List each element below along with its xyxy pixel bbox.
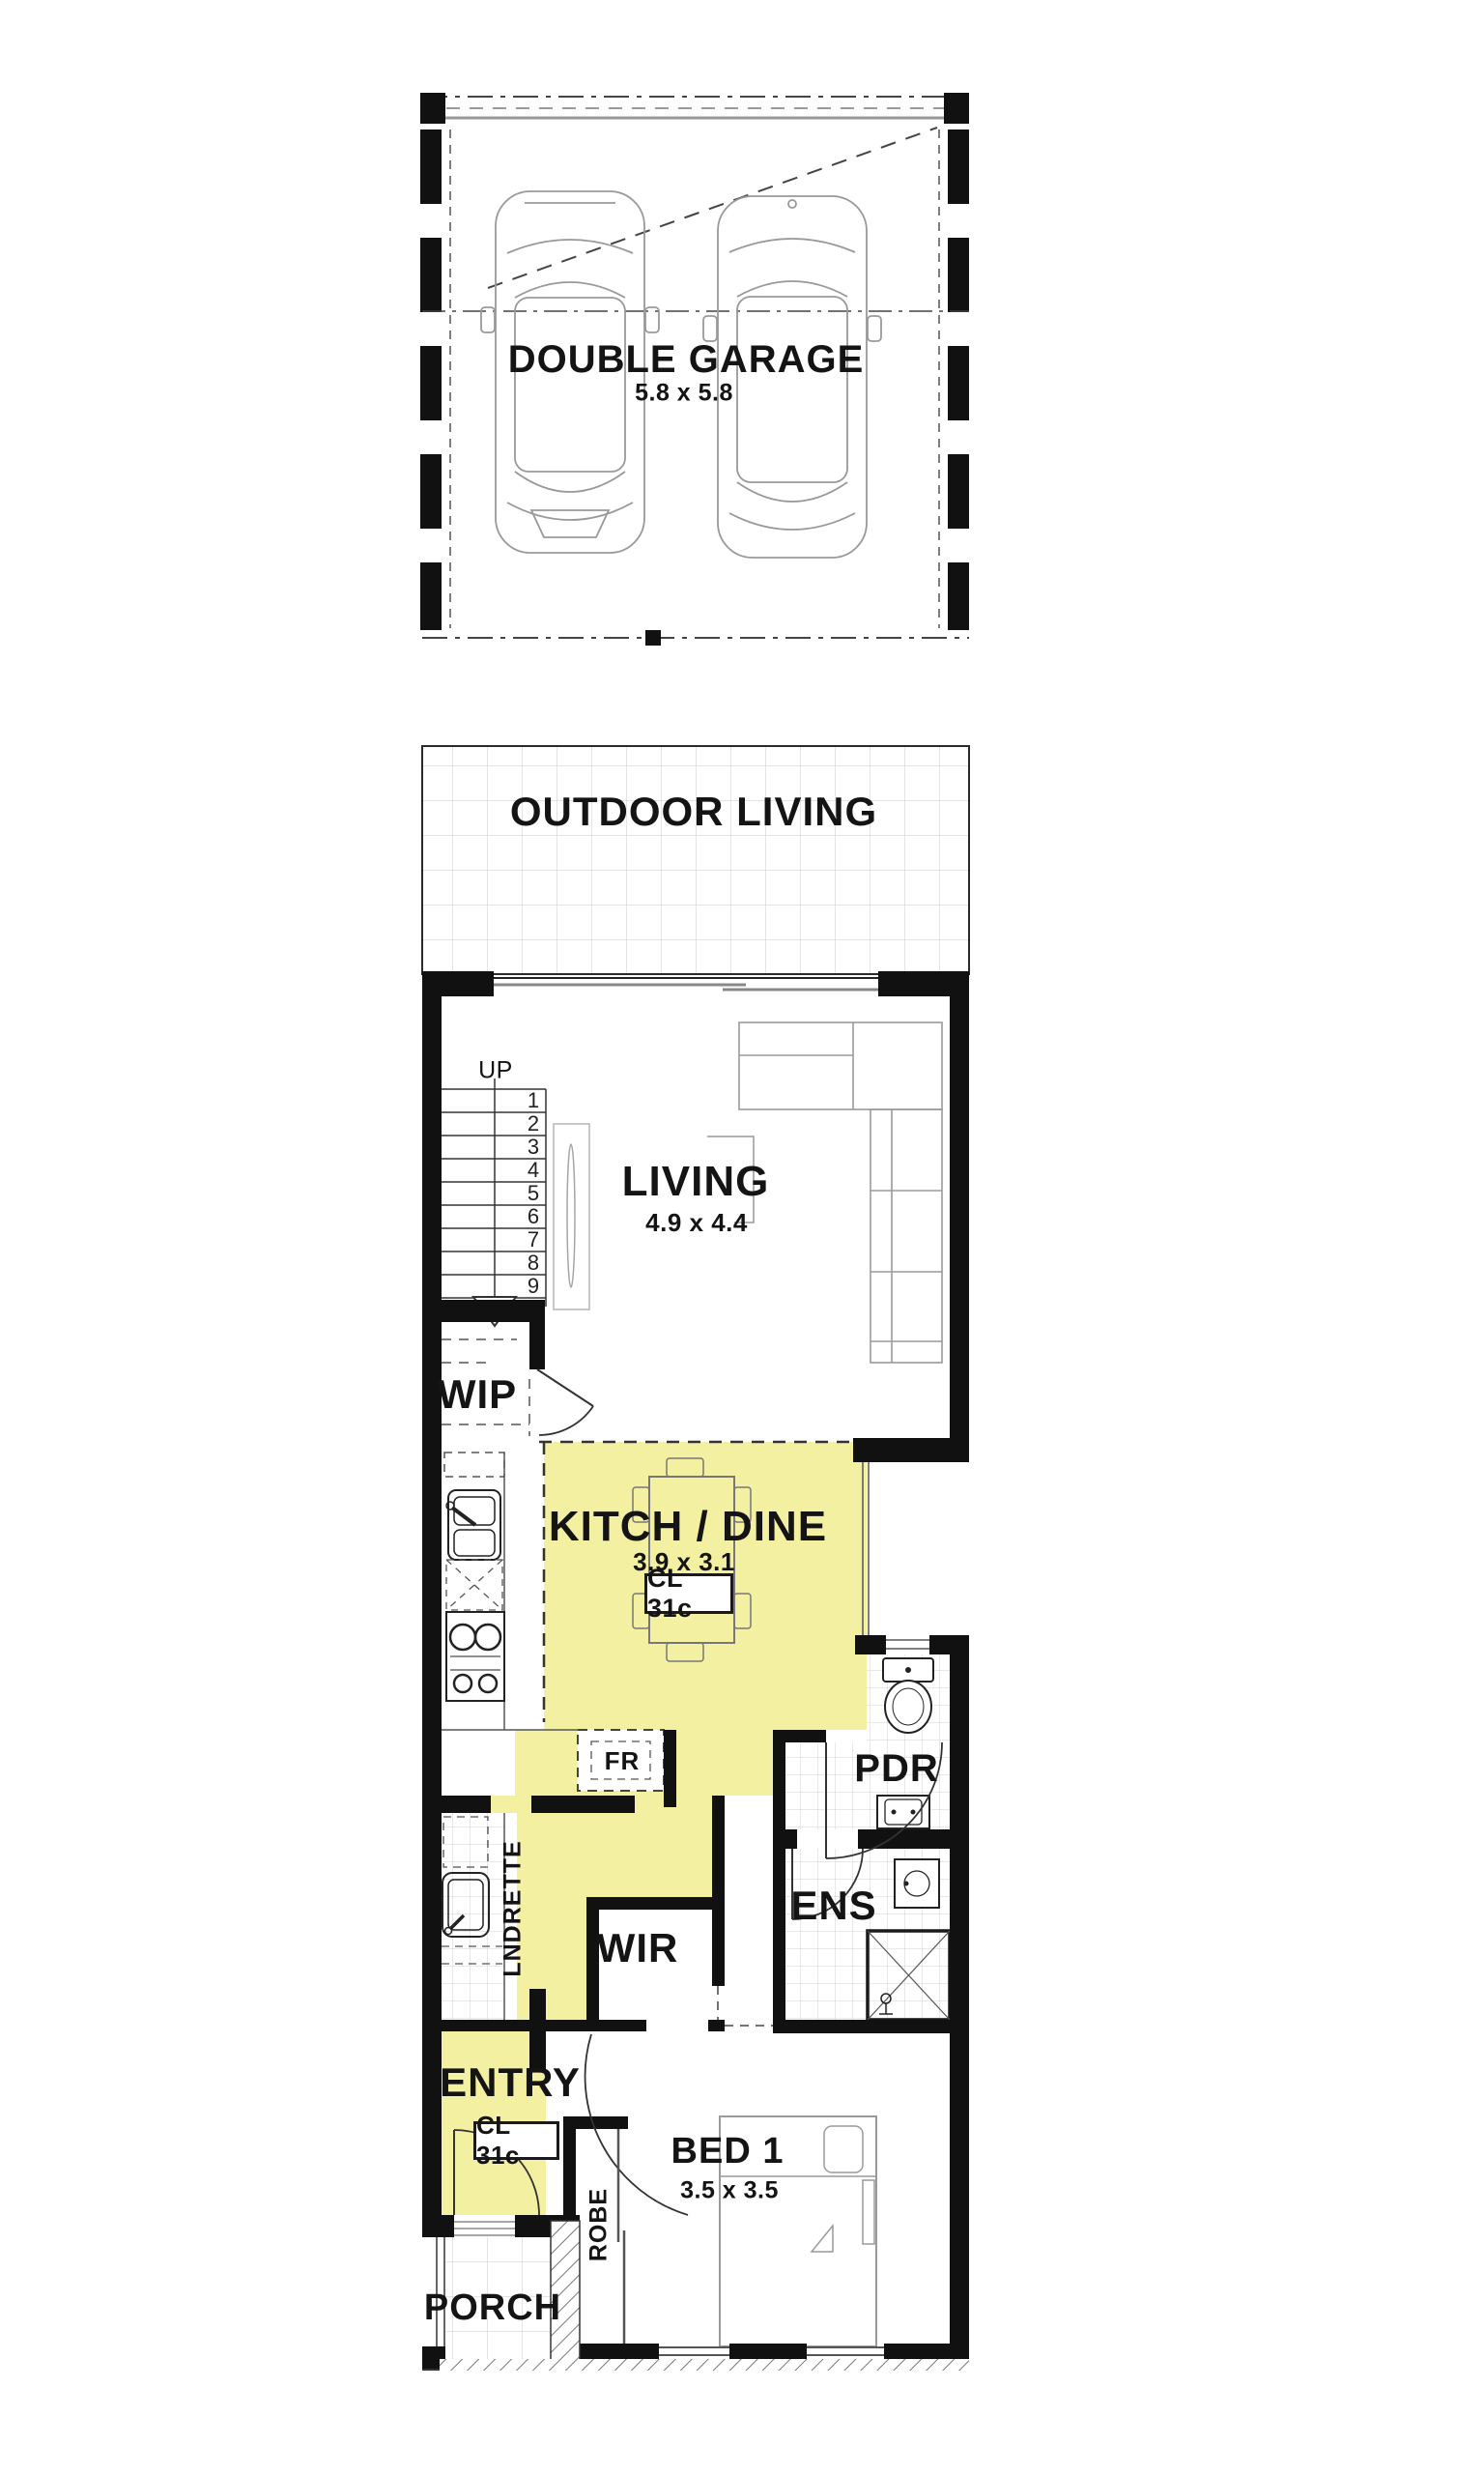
- kitchen-ceiling-height-tag: CL 31c: [644, 1573, 733, 1614]
- outdoor-living-label: OUTDOOR LIVING: [510, 791, 877, 832]
- stair-tread-number: 8: [528, 1251, 539, 1276]
- stair-balustrade: [554, 1124, 589, 1309]
- pdr-label: PDR: [854, 1749, 938, 1788]
- bed1-dims: 3.5 x 3.5: [680, 2179, 779, 2203]
- garage-label: DOUBLE GARAGE: [508, 340, 865, 379]
- kitchen-dine-label: KITCH / DINE: [549, 1506, 827, 1548]
- living-label: LIVING: [622, 1161, 770, 1203]
- wip-label: WIP: [438, 1374, 517, 1415]
- stair-tread-number: 4: [528, 1158, 539, 1183]
- stair-tread-number: 2: [528, 1111, 539, 1136]
- wir-label: WIR: [597, 1928, 679, 1969]
- porch-label: PORCH: [424, 2289, 561, 2326]
- living-dims: 4.9 x 4.4: [645, 1210, 748, 1235]
- robe-label: ROBE: [587, 2188, 612, 2261]
- stair-tread-number: 1: [528, 1088, 539, 1113]
- stair-tread-number: 9: [528, 1274, 539, 1299]
- dishwasher: [446, 1560, 502, 1610]
- bed1-label: BED 1: [671, 2133, 785, 2170]
- pdr-toilet: [883, 1658, 933, 1733]
- laundry-label: LNDRETTE: [501, 1840, 526, 1976]
- entry-label: ENTRY: [440, 2062, 581, 2103]
- stairs-up-label: UP: [478, 1059, 513, 1083]
- stair-tread-number: 3: [528, 1135, 539, 1160]
- kitchen-sink: [446, 1490, 500, 1560]
- pdr-basin: [877, 1796, 929, 1828]
- ens-label: ENS: [790, 1885, 876, 1926]
- stair-tread-number: 5: [528, 1181, 539, 1206]
- fridge-label: FR: [605, 1748, 641, 1773]
- stair-tread-number: 7: [528, 1227, 539, 1252]
- cooktop: [446, 1612, 504, 1701]
- sofa: [739, 1022, 942, 1363]
- outdoor-living-area: [422, 746, 969, 974]
- floor-plan-page: DOUBLE GARAGE 5.8 x 5.8 OUTDOOR LIVING L…: [0, 0, 1484, 2474]
- entry-ceiling-height-tag: CL 31c: [473, 2121, 559, 2160]
- ens-basin: [895, 1859, 939, 1908]
- garage-dims: 5.8 x 5.8: [635, 382, 733, 406]
- stair-tread-number: 6: [528, 1204, 539, 1229]
